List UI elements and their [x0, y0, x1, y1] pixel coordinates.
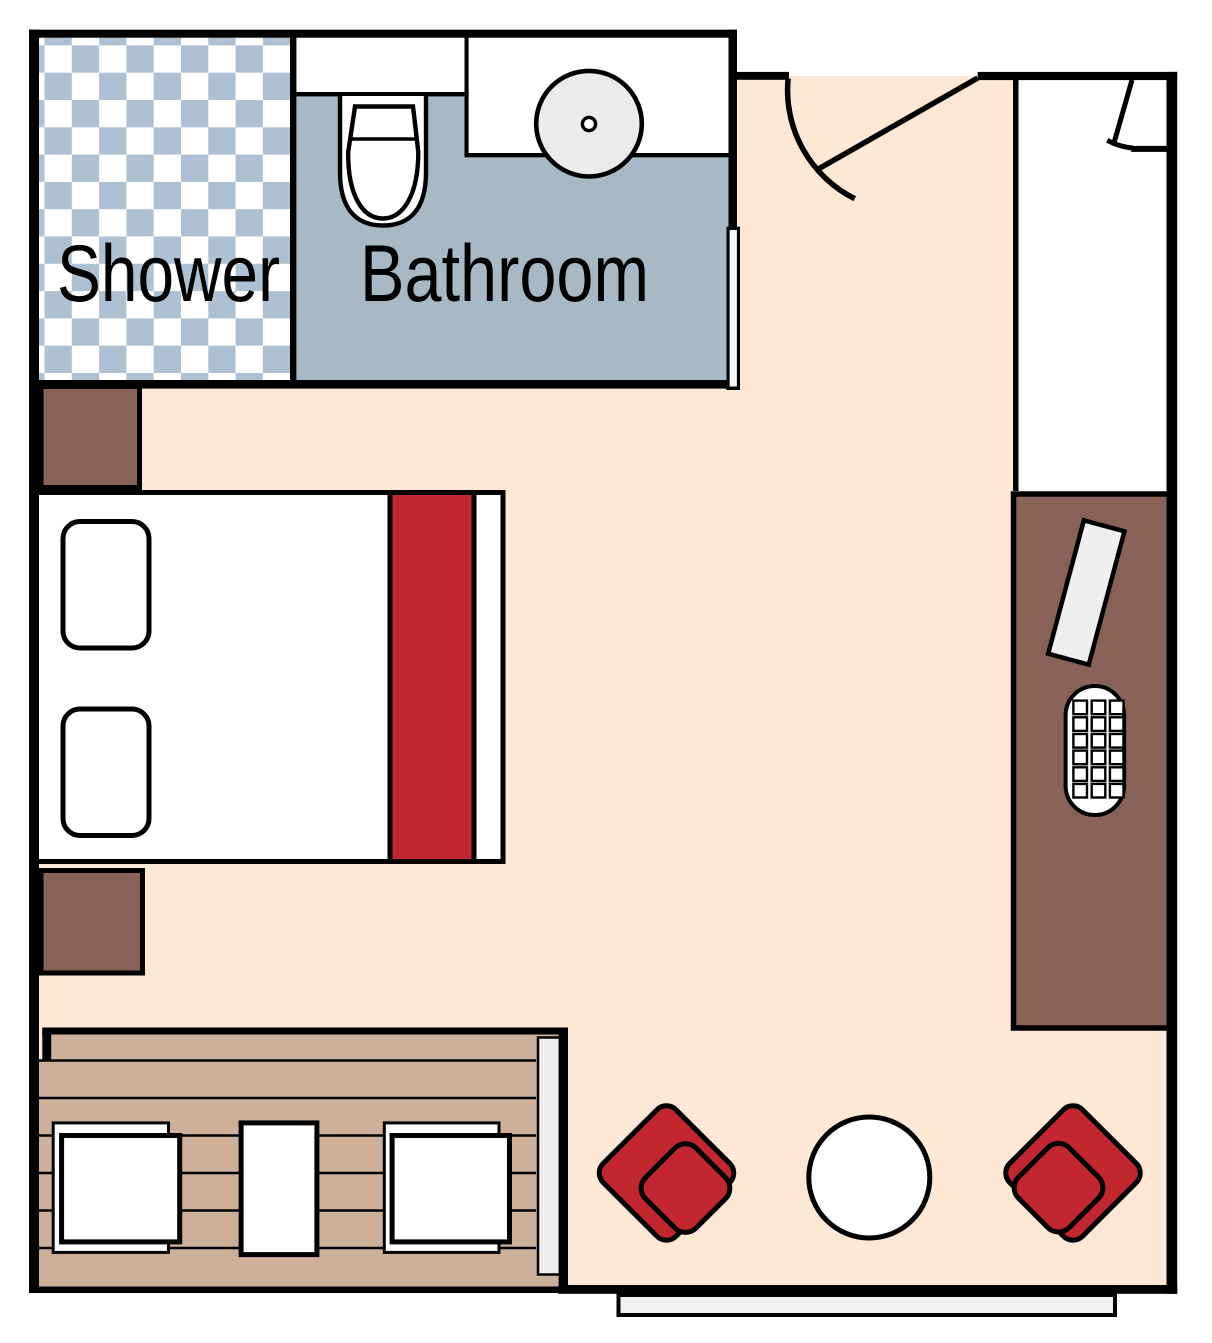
- svg-text:Bathroom: Bathroom: [360, 229, 649, 319]
- svg-text:Shower: Shower: [57, 229, 280, 319]
